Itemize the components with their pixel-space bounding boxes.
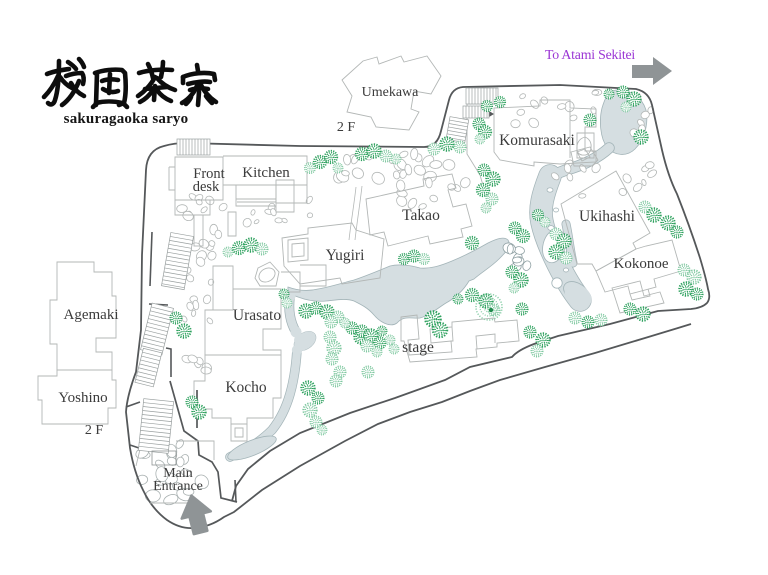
svg-text:Yugiri: Yugiri [326,247,365,264]
svg-text:desk: desk [193,179,220,195]
svg-text:Entrance: Entrance [153,479,203,494]
svg-text:Komurasaki: Komurasaki [499,132,575,149]
svg-text:Kitchen: Kitchen [242,165,290,181]
svg-text:Takao: Takao [402,207,440,224]
svg-text:2 F: 2 F [85,423,104,438]
svg-text:Agemaki: Agemaki [64,307,119,323]
svg-text:Urasato: Urasato [233,307,281,324]
svg-text:To Atami Sekitei: To Atami Sekitei [545,47,635,62]
svg-text:Kokonoe: Kokonoe [614,256,669,272]
svg-text:Yoshino: Yoshino [58,390,107,406]
svg-text:Kocho: Kocho [225,379,267,396]
svg-text:sakuragaoka saryo: sakuragaoka saryo [64,111,189,127]
svg-text:Ukihashi: Ukihashi [579,208,636,225]
svg-text:Umekawa: Umekawa [362,85,420,100]
svg-text:stage: stage [402,339,434,356]
svg-text:2 F: 2 F [337,120,356,135]
